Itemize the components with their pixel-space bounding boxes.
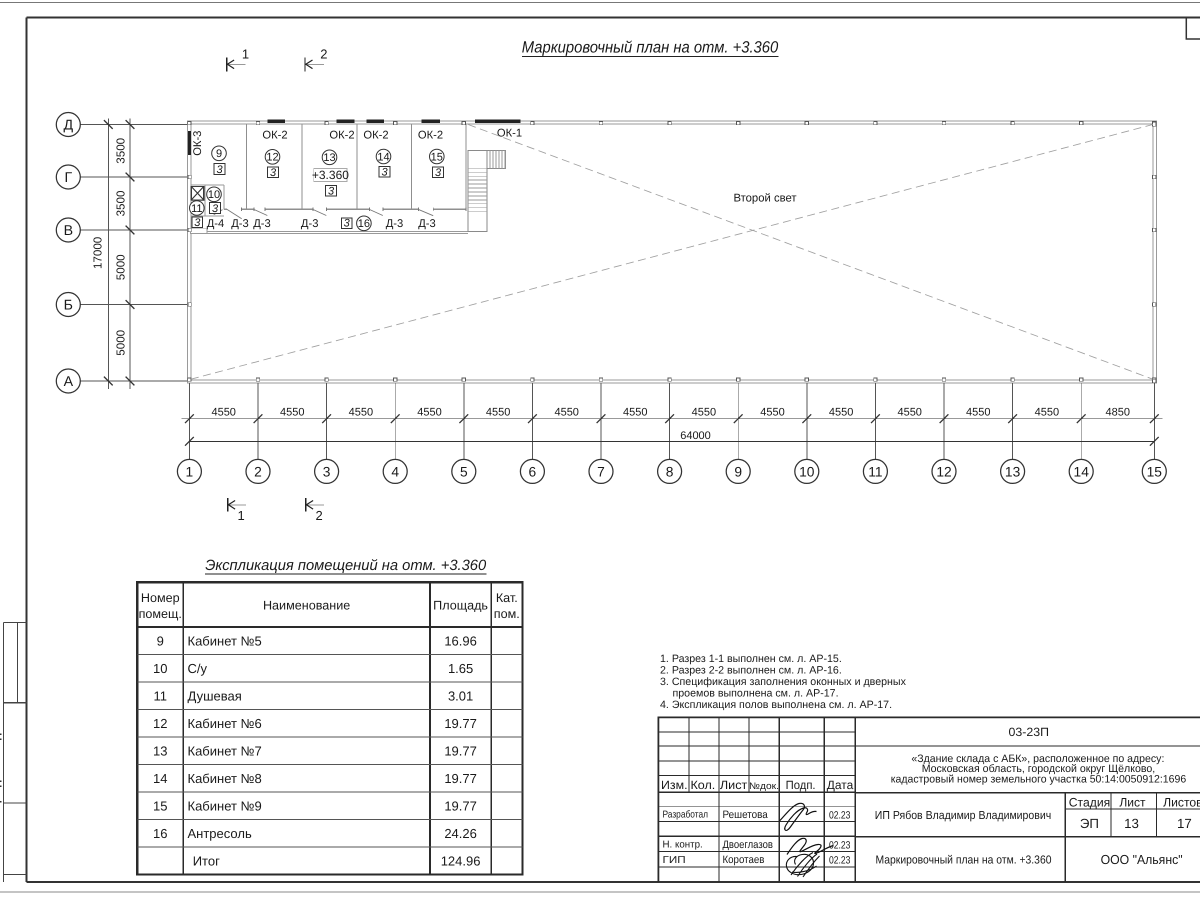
svg-text:5: 5 [460, 464, 468, 479]
svg-text:Площадь: Площадь [433, 599, 488, 613]
svg-text:Кабинет №9: Кабинет №9 [188, 798, 262, 813]
svg-text:4550: 4550 [1035, 406, 1059, 418]
svg-text:4550: 4550 [554, 406, 578, 418]
svg-text:4. Экспликация полов выполнена: 4. Экспликация полов выполнена см. л. АР… [660, 699, 892, 711]
svg-text:Второй свет: Второй свет [733, 193, 796, 205]
svg-text:10: 10 [208, 189, 220, 201]
svg-text:ОК-3: ОК-3 [192, 131, 204, 156]
svg-text:13: 13 [153, 743, 167, 758]
svg-text:12: 12 [936, 464, 951, 479]
svg-text:4550: 4550 [829, 406, 853, 418]
svg-text:пом.: пом. [494, 607, 520, 621]
svg-text:4550: 4550 [692, 406, 716, 418]
svg-text:Экспликация помещений на отм.: Экспликация помещений на отм. +3.360 [205, 558, 487, 574]
svg-text:8: 8 [666, 464, 674, 479]
svg-text:3: 3 [435, 167, 442, 179]
svg-text:64000: 64000 [680, 430, 711, 442]
svg-text:Лист: Лист [720, 778, 748, 792]
svg-text:3: 3 [381, 167, 388, 179]
svg-text:Кабинет №5: Кабинет №5 [188, 633, 262, 648]
svg-text:Подп.: Подп. [786, 778, 816, 792]
svg-text:15: 15 [153, 798, 167, 813]
svg-text:Решетова: Решетова [723, 809, 768, 821]
svg-text:А: А [64, 374, 74, 390]
svg-text:ОК-1: ОК-1 [497, 128, 522, 140]
svg-text:02.23: 02.23 [829, 809, 851, 821]
svg-text:ООО "Альянс": ООО "Альянс" [1101, 852, 1183, 867]
svg-text:Д-3: Д-3 [253, 218, 271, 230]
svg-text:19.77: 19.77 [444, 743, 477, 758]
svg-text:9: 9 [216, 148, 222, 160]
svg-text:4550: 4550 [211, 406, 235, 418]
svg-text:3: 3 [212, 203, 219, 215]
svg-text:Разработал: Разработал [663, 810, 709, 821]
svg-text:4850: 4850 [1106, 406, 1130, 418]
svg-text:1: 1 [237, 508, 244, 523]
svg-text:кадастровый номер земельного у: кадастровый номер земельного участка 50:… [891, 774, 1186, 786]
svg-text:Кол.: Кол. [691, 778, 716, 792]
svg-text:11: 11 [191, 203, 202, 215]
svg-text:13: 13 [1124, 816, 1139, 831]
svg-text:№док.: №док. [749, 781, 779, 792]
svg-text:3: 3 [323, 464, 331, 479]
svg-text:ОК-2: ОК-2 [329, 130, 354, 142]
svg-text:Д-3: Д-3 [386, 218, 404, 230]
svg-text:проемов выполнена см. л. АР-17: проемов выполнена см. л. АР-17. [673, 687, 839, 699]
svg-text:19.77: 19.77 [444, 716, 477, 731]
svg-text:Н. контр.: Н. контр. [663, 840, 703, 851]
svg-text:3: 3 [216, 164, 223, 176]
svg-text:ОК-2: ОК-2 [418, 130, 443, 142]
svg-text:9: 9 [157, 633, 164, 648]
svg-text:4550: 4550 [486, 406, 510, 418]
svg-text:+3.360: +3.360 [312, 168, 349, 182]
svg-text:3: 3 [194, 217, 201, 229]
svg-text:Изм.: Изм. [661, 778, 688, 792]
svg-text:Номер: Номер [141, 591, 180, 605]
svg-text:17000: 17000 [92, 237, 105, 269]
svg-text:16.96: 16.96 [444, 633, 477, 648]
svg-text:Кабинет №7: Кабинет №7 [188, 743, 262, 758]
svg-text:7: 7 [597, 464, 605, 479]
svg-text:6: 6 [529, 464, 537, 479]
svg-text:Антресоль: Антресоль [188, 826, 252, 841]
svg-text:3: 3 [344, 218, 351, 230]
svg-text:10: 10 [153, 661, 167, 676]
svg-text:14: 14 [377, 151, 389, 163]
svg-text:13: 13 [1005, 464, 1021, 479]
svg-text:ГИП: ГИП [663, 855, 686, 866]
svg-text:Двоеглазов: Двоеглазов [723, 839, 774, 851]
svg-text:Б: Б [64, 298, 73, 314]
svg-text:9: 9 [734, 464, 742, 479]
svg-text:12: 12 [153, 716, 167, 731]
svg-text:1: 1 [242, 46, 249, 61]
svg-text:4: 4 [391, 464, 399, 479]
svg-text:11: 11 [868, 464, 882, 479]
svg-text:Кат.: Кат. [496, 591, 518, 605]
svg-text:12: 12 [266, 152, 278, 164]
svg-text:Д-4: Д-4 [207, 218, 225, 230]
svg-text:10: 10 [799, 464, 815, 479]
svg-text:В: В [64, 223, 73, 239]
svg-text:Стадия: Стадия [1069, 795, 1111, 809]
svg-text:Д-3: Д-3 [231, 218, 249, 230]
svg-text:Г: Г [64, 170, 72, 186]
svg-text:4550: 4550 [417, 406, 441, 418]
svg-text:15: 15 [431, 151, 443, 163]
svg-text:Маркировочный план на отм. +3.: Маркировочный план на отм. +3.360 [522, 39, 779, 57]
svg-text:2: 2 [315, 508, 322, 523]
svg-text:13: 13 [323, 152, 335, 164]
svg-text:4550: 4550 [897, 406, 921, 418]
svg-text:2. Разрез 2-2 выполнен см. л.: 2. Разрез 2-2 выполнен см. л. АР-16. [660, 664, 842, 676]
svg-text:Кабинет №6: Кабинет №6 [188, 716, 262, 731]
svg-text:С/у: С/у [188, 661, 208, 676]
svg-text:ОК-2: ОК-2 [363, 130, 388, 142]
svg-text:Кабинет №8: Кабинет №8 [188, 771, 262, 786]
svg-text:3: 3 [328, 186, 335, 198]
svg-text:03-23П: 03-23П [1009, 725, 1050, 739]
svg-text:14: 14 [1074, 464, 1090, 479]
svg-text:3500: 3500 [114, 138, 127, 164]
svg-text:14: 14 [153, 771, 167, 786]
svg-text:24.26: 24.26 [444, 826, 477, 841]
svg-text:Наименование: Наименование [263, 599, 350, 613]
svg-text:124.96: 124.96 [441, 853, 481, 868]
svg-text:4550: 4550 [966, 406, 990, 418]
svg-text:15: 15 [1147, 464, 1163, 479]
svg-text:16: 16 [358, 218, 370, 230]
svg-text:4550: 4550 [349, 406, 373, 418]
svg-text:Маркировочный план на отм. +3.: Маркировочный план на отм. +3.360 [876, 854, 1052, 867]
svg-text:3500: 3500 [114, 191, 127, 217]
svg-text:19.77: 19.77 [444, 771, 477, 786]
svg-text:ИП Рябов Владимир Владимирович: ИП Рябов Владимир Владимирович [875, 809, 1051, 822]
svg-text:4550: 4550 [760, 406, 784, 418]
svg-text:помещ.: помещ. [139, 607, 182, 621]
svg-text:17: 17 [1177, 816, 1192, 831]
svg-text:5000: 5000 [114, 330, 127, 356]
svg-text:Д-3: Д-3 [301, 218, 319, 230]
svg-text:1.65: 1.65 [448, 661, 473, 676]
svg-text:Душевая: Душевая [188, 688, 242, 703]
svg-text:02.23: 02.23 [829, 855, 851, 867]
svg-text:19.77: 19.77 [444, 798, 477, 813]
svg-text:Листов: Листов [1163, 795, 1200, 809]
svg-text:Д: Д [63, 118, 73, 134]
svg-text:4550: 4550 [280, 406, 304, 418]
svg-text:3. Спецификация заполнения око: 3. Спецификация заполнения оконных и две… [660, 676, 907, 688]
svg-text:4550: 4550 [623, 406, 647, 418]
svg-text:ЭП: ЭП [1080, 816, 1099, 831]
svg-text:Лист: Лист [1119, 795, 1146, 809]
svg-text:Итог: Итог [193, 853, 220, 868]
svg-text:3: 3 [270, 167, 277, 179]
svg-text:Дата: Дата [827, 778, 854, 792]
svg-text:1: 1 [186, 464, 194, 479]
svg-text:Коротаев: Коротаев [723, 854, 765, 866]
svg-text:5000: 5000 [114, 254, 127, 280]
svg-text:2: 2 [320, 46, 327, 61]
svg-text:11: 11 [154, 688, 168, 703]
svg-text:1. Разрез 1-1 выполнен см. л.: 1. Разрез 1-1 выполнен см. л. АР-15. [660, 653, 842, 665]
svg-text:ОК-2: ОК-2 [262, 130, 287, 142]
svg-text:Д-3: Д-3 [418, 218, 436, 230]
svg-text:2: 2 [254, 464, 262, 479]
svg-text:3.01: 3.01 [448, 688, 473, 703]
svg-text:16: 16 [153, 826, 167, 841]
